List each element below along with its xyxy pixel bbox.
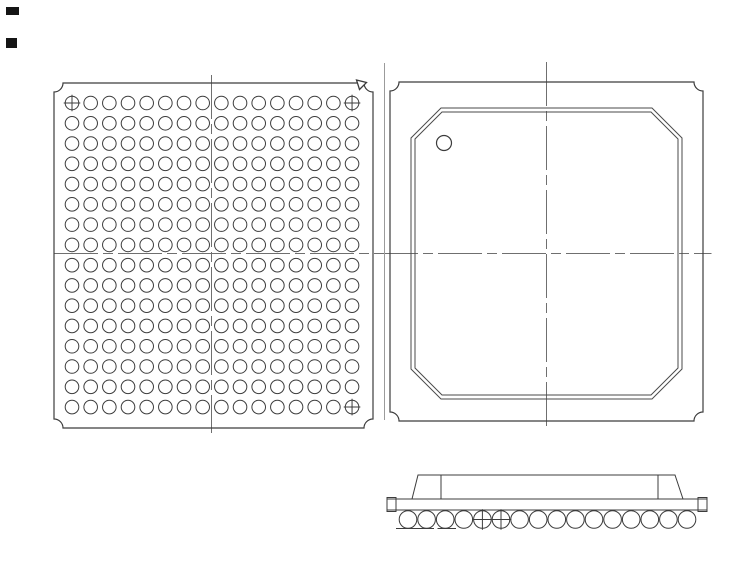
solder-ball: [159, 238, 173, 252]
solder-ball: [177, 177, 191, 191]
solder-ball: [103, 238, 117, 252]
solder-ball: [140, 238, 154, 252]
solder-ball: [215, 137, 229, 151]
solder-ball: [196, 380, 210, 394]
solder-ball: [271, 157, 285, 171]
solder-ball: [177, 380, 191, 394]
side-solder-ball: [641, 511, 659, 529]
solder-ball: [345, 360, 359, 374]
solder-ball: [233, 116, 247, 130]
solder-ball: [233, 360, 247, 374]
solder-ball: [252, 96, 266, 110]
solder-ball: [327, 400, 341, 414]
solder-ball: [84, 339, 98, 353]
solder-ball: [65, 380, 79, 394]
solder-ball: [177, 339, 191, 353]
solder-ball: [159, 360, 173, 374]
solder-ball: [84, 258, 98, 272]
solder-ball: [215, 380, 229, 394]
solder-ball: [103, 177, 117, 191]
solder-ball: [159, 198, 173, 212]
solder-ball: [271, 96, 285, 110]
solder-ball: [289, 319, 303, 333]
solder-ball: [308, 218, 322, 232]
solder-ball: [215, 339, 229, 353]
solder-ball: [121, 360, 135, 374]
solder-ball: [196, 137, 210, 151]
solder-ball: [177, 137, 191, 151]
solder-ball: [252, 400, 266, 414]
solder-ball: [327, 360, 341, 374]
solder-ball: [345, 279, 359, 293]
solder-ball: [345, 258, 359, 272]
solder-ball: [84, 319, 98, 333]
solder-ball: [233, 299, 247, 313]
solder-ball: [159, 279, 173, 293]
mold-cap-profile: [412, 475, 683, 499]
solder-ball: [215, 258, 229, 272]
solder-ball: [84, 177, 98, 191]
scan-artifact-mark: [6, 38, 17, 48]
solder-ball: [159, 96, 173, 110]
solder-ball: [121, 198, 135, 212]
solder-ball: [308, 339, 322, 353]
solder-ball: [84, 96, 98, 110]
solder-ball: [327, 319, 341, 333]
solder-ball: [215, 177, 229, 191]
solder-ball: [177, 238, 191, 252]
solder-ball: [271, 319, 285, 333]
solder-ball: [308, 198, 322, 212]
solder-ball: [215, 238, 229, 252]
solder-ball: [289, 198, 303, 212]
solder-ball: [215, 319, 229, 333]
solder-ball: [345, 177, 359, 191]
solder-ball: [103, 258, 117, 272]
solder-ball: [289, 177, 303, 191]
solder-ball: [233, 157, 247, 171]
solder-ball: [345, 116, 359, 130]
solder-ball: [233, 400, 247, 414]
solder-ball: [159, 380, 173, 394]
solder-ball: [177, 218, 191, 232]
solder-ball: [196, 279, 210, 293]
solder-ball: [345, 137, 359, 151]
solder-ball: [196, 218, 210, 232]
solder-ball: [252, 198, 266, 212]
solder-ball: [84, 279, 98, 293]
solder-ball: [289, 360, 303, 374]
solder-ball: [271, 380, 285, 394]
solder-ball: [345, 339, 359, 353]
solder-ball: [103, 198, 117, 212]
side-solder-ball: [660, 511, 678, 529]
solder-ball: [271, 177, 285, 191]
solder-ball: [196, 177, 210, 191]
side-solder-ball: [567, 511, 585, 529]
figure-canvas: [0, 0, 754, 576]
solder-ball: [252, 177, 266, 191]
solder-ball: [215, 198, 229, 212]
solder-ball: [140, 198, 154, 212]
solder-ball: [252, 238, 266, 252]
side-solder-ball: [604, 511, 622, 529]
solder-ball: [159, 137, 173, 151]
solder-ball: [233, 137, 247, 151]
solder-ball: [252, 380, 266, 394]
solder-ball: [140, 177, 154, 191]
solder-ball: [271, 400, 285, 414]
solder-ball: [140, 360, 154, 374]
solder-ball: [233, 339, 247, 353]
solder-ball: [308, 279, 322, 293]
solder-ball: [327, 198, 341, 212]
solder-ball: [252, 218, 266, 232]
solder-ball: [103, 339, 117, 353]
solder-ball: [271, 299, 285, 313]
solder-ball: [121, 157, 135, 171]
solder-ball: [271, 238, 285, 252]
solder-ball: [233, 177, 247, 191]
solder-ball: [252, 157, 266, 171]
solder-ball: [103, 218, 117, 232]
solder-ball: [84, 198, 98, 212]
solder-ball: [289, 258, 303, 272]
solder-ball: [215, 299, 229, 313]
solder-ball: [327, 258, 341, 272]
solder-ball: [121, 238, 135, 252]
solder-ball: [121, 258, 135, 272]
solder-ball: [271, 198, 285, 212]
package-mechanical-drawing: [0, 0, 754, 576]
solder-ball: [65, 198, 79, 212]
solder-ball: [233, 279, 247, 293]
solder-ball: [252, 299, 266, 313]
solder-ball: [308, 238, 322, 252]
solder-ball: [308, 400, 322, 414]
side-solder-ball: [585, 511, 603, 529]
solder-ball: [121, 380, 135, 394]
side-solder-ball: [511, 511, 529, 529]
solder-ball: [215, 400, 229, 414]
side-solder-ball: [678, 511, 696, 529]
solder-ball: [233, 319, 247, 333]
solder-ball: [327, 299, 341, 313]
solder-ball: [65, 299, 79, 313]
solder-ball: [308, 96, 322, 110]
solder-ball: [177, 116, 191, 130]
solder-ball: [121, 400, 135, 414]
solder-ball: [271, 360, 285, 374]
solder-ball: [327, 238, 341, 252]
solder-ball: [103, 96, 117, 110]
solder-ball: [289, 380, 303, 394]
solder-ball: [196, 400, 210, 414]
solder-ball: [84, 218, 98, 232]
solder-ball: [65, 339, 79, 353]
solder-ball: [215, 279, 229, 293]
solder-ball: [84, 137, 98, 151]
solder-ball: [271, 137, 285, 151]
solder-ball: [233, 198, 247, 212]
solder-ball: [103, 400, 117, 414]
solder-ball: [327, 137, 341, 151]
solder-ball: [84, 380, 98, 394]
solder-ball: [159, 299, 173, 313]
solder-ball: [271, 279, 285, 293]
solder-ball: [233, 258, 247, 272]
solder-ball: [159, 339, 173, 353]
pin1-indicator-circle: [437, 136, 452, 151]
substrate-bar: [387, 499, 707, 510]
solder-ball: [196, 198, 210, 212]
solder-ball: [327, 339, 341, 353]
solder-ball: [196, 258, 210, 272]
solder-ball: [289, 339, 303, 353]
solder-ball: [121, 177, 135, 191]
solder-ball: [159, 258, 173, 272]
scan-artifacts: [6, 7, 19, 48]
solder-ball: [159, 177, 173, 191]
bga-side-view: [387, 475, 707, 530]
solder-ball: [140, 279, 154, 293]
substrate-end-cap: [698, 498, 707, 512]
solder-ball: [233, 380, 247, 394]
solder-ball: [140, 400, 154, 414]
solder-ball: [289, 238, 303, 252]
solder-ball: [308, 157, 322, 171]
solder-ball: [121, 96, 135, 110]
solder-ball: [121, 299, 135, 313]
package-outline-bottom: [54, 83, 373, 428]
solder-ball: [65, 258, 79, 272]
solder-ball: [327, 96, 341, 110]
solder-ball: [308, 137, 322, 151]
solder-ball: [177, 198, 191, 212]
solder-ball: [196, 116, 210, 130]
solder-ball: [196, 96, 210, 110]
solder-ball: [159, 116, 173, 130]
solder-ball: [84, 238, 98, 252]
solder-ball: [159, 218, 173, 232]
solder-ball: [215, 218, 229, 232]
solder-ball: [140, 157, 154, 171]
solder-ball: [196, 319, 210, 333]
solder-ball: [308, 177, 322, 191]
solder-ball: [121, 218, 135, 232]
solder-ball: [65, 218, 79, 232]
solder-ball: [289, 279, 303, 293]
solder-ball: [159, 157, 173, 171]
solder-ball: [65, 177, 79, 191]
solder-ball: [289, 218, 303, 232]
solder-ball: [65, 116, 79, 130]
solder-ball: [345, 299, 359, 313]
solder-ball: [177, 96, 191, 110]
solder-ball: [84, 116, 98, 130]
solder-ball: [289, 116, 303, 130]
solder-ball: [196, 299, 210, 313]
solder-ball: [289, 137, 303, 151]
solder-ball: [345, 198, 359, 212]
solder-ball: [177, 400, 191, 414]
solder-ball: [327, 177, 341, 191]
solder-ball: [121, 116, 135, 130]
solder-ball: [289, 400, 303, 414]
solder-ball: [252, 360, 266, 374]
solder-ball: [345, 218, 359, 232]
solder-ball: [177, 279, 191, 293]
solder-ball: [308, 319, 322, 333]
solder-ball: [289, 96, 303, 110]
solder-ball: [308, 360, 322, 374]
solder-ball: [196, 157, 210, 171]
solder-ball: [196, 339, 210, 353]
solder-ball: [345, 319, 359, 333]
solder-ball: [327, 279, 341, 293]
solder-ball: [140, 299, 154, 313]
side-solder-ball: [399, 511, 417, 529]
solder-ball: [252, 116, 266, 130]
solder-ball: [140, 319, 154, 333]
solder-ball: [65, 238, 79, 252]
solder-ball: [215, 157, 229, 171]
solder-ball: [140, 96, 154, 110]
solder-ball: [121, 137, 135, 151]
solder-ball: [308, 116, 322, 130]
solder-ball: [140, 116, 154, 130]
solder-ball: [65, 157, 79, 171]
solder-ball: [103, 116, 117, 130]
solder-ball: [121, 279, 135, 293]
solder-ball: [140, 218, 154, 232]
solder-ball: [196, 360, 210, 374]
solder-ball: [308, 299, 322, 313]
solder-ball: [103, 299, 117, 313]
solder-ball: [65, 137, 79, 151]
solder-ball: [271, 116, 285, 130]
side-solder-ball: [418, 511, 436, 529]
solder-ball: [196, 238, 210, 252]
side-solder-ball: [529, 511, 547, 529]
solder-ball: [215, 360, 229, 374]
solder-ball: [84, 299, 98, 313]
solder-ball: [271, 339, 285, 353]
solder-ball: [103, 137, 117, 151]
solder-ball: [233, 96, 247, 110]
solder-ball: [252, 137, 266, 151]
solder-ball: [140, 258, 154, 272]
solder-ball: [345, 380, 359, 394]
solder-ball: [327, 380, 341, 394]
solder-ball: [177, 360, 191, 374]
solder-ball: [121, 319, 135, 333]
side-solder-ball: [436, 511, 454, 529]
solder-ball: [271, 258, 285, 272]
solder-ball: [159, 400, 173, 414]
solder-ball: [233, 218, 247, 232]
solder-ball: [103, 279, 117, 293]
solder-ball: [65, 319, 79, 333]
solder-ball: [103, 157, 117, 171]
solder-ball: [308, 380, 322, 394]
solder-ball: [252, 339, 266, 353]
solder-ball: [177, 157, 191, 171]
solder-ball: [252, 279, 266, 293]
solder-ball: [121, 339, 135, 353]
solder-ball: [308, 258, 322, 272]
solder-ball: [65, 400, 79, 414]
solder-ball: [177, 319, 191, 333]
solder-ball: [289, 299, 303, 313]
side-solder-ball: [548, 511, 566, 529]
solder-ball: [215, 96, 229, 110]
solder-ball: [327, 157, 341, 171]
solder-ball: [345, 238, 359, 252]
solder-ball: [289, 157, 303, 171]
solder-ball: [252, 258, 266, 272]
solder-ball: [84, 360, 98, 374]
scan-artifact-mark: [6, 7, 19, 15]
solder-ball: [84, 157, 98, 171]
solder-ball: [65, 360, 79, 374]
solder-ball: [65, 279, 79, 293]
solder-ball: [177, 299, 191, 313]
solder-ball: [345, 157, 359, 171]
substrate-end-cap: [387, 498, 396, 512]
solder-ball: [177, 258, 191, 272]
solder-ball: [84, 400, 98, 414]
solder-ball: [103, 380, 117, 394]
solder-ball: [159, 319, 173, 333]
side-solder-ball: [455, 511, 473, 529]
solder-ball: [140, 380, 154, 394]
solder-ball: [233, 238, 247, 252]
solder-ball: [327, 116, 341, 130]
side-solder-ball: [622, 511, 640, 529]
solder-ball: [140, 137, 154, 151]
solder-ball: [215, 116, 229, 130]
solder-ball: [140, 339, 154, 353]
solder-ball: [103, 360, 117, 374]
solder-ball: [271, 218, 285, 232]
solder-ball: [103, 319, 117, 333]
solder-ball: [252, 319, 266, 333]
solder-ball: [327, 218, 341, 232]
